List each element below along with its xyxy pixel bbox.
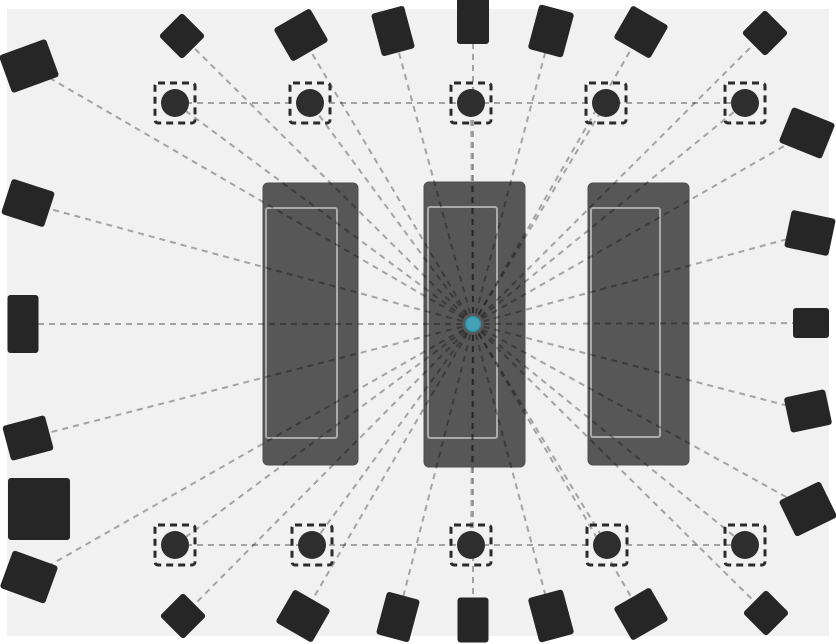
wall-left [263,183,358,465]
center-point [466,317,481,332]
circle-node [731,89,759,117]
diagram-canvas [0,0,836,644]
diagram-stage [0,0,836,644]
edge-square-node [457,0,489,44]
edge-square-node [8,478,70,540]
edge-square-node [793,308,829,338]
circle-node [593,531,621,559]
circle-node [298,531,326,559]
edge-square-node [458,598,489,643]
circle-node [161,89,189,117]
circle-node [457,531,485,559]
circle-node [592,89,620,117]
circle-node [296,89,324,117]
circle-node [457,89,485,117]
circle-node [161,531,189,559]
edge-square-node [8,295,39,353]
circle-node [731,531,759,559]
